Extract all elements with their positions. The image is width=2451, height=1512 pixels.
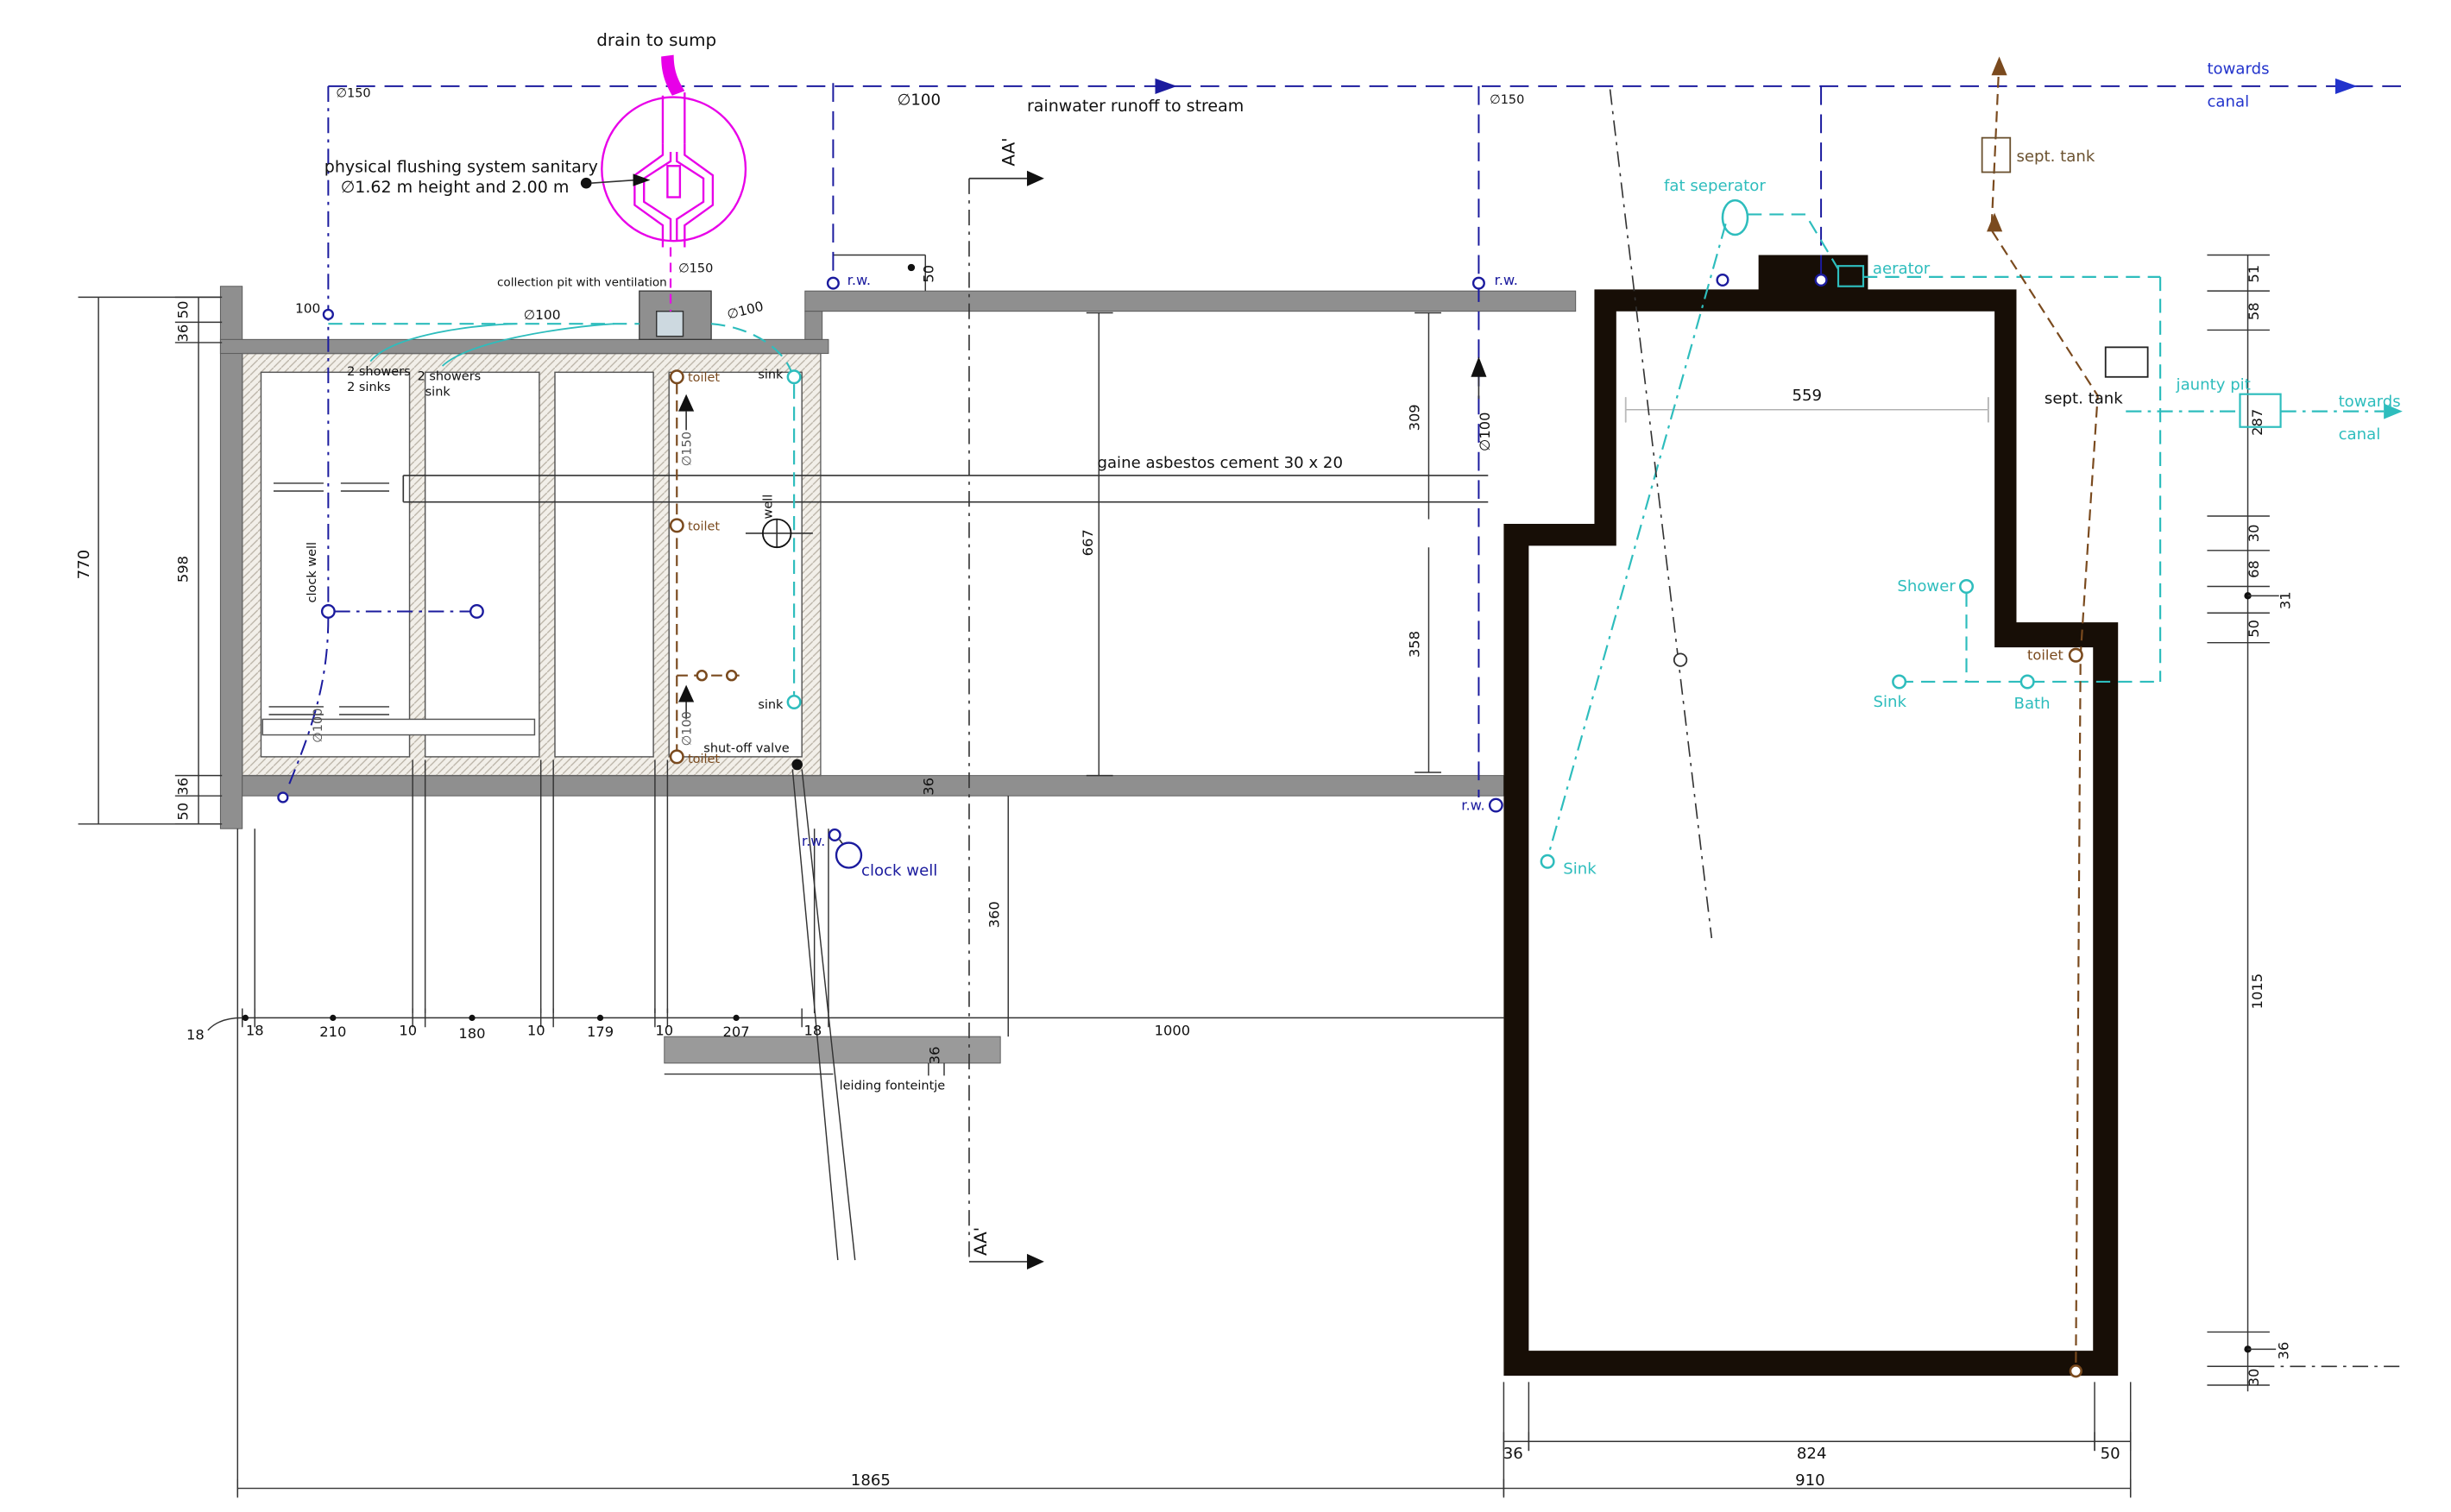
shower-node-icon — [1960, 580, 1972, 592]
flushing-note-line1: physical flushing system sanitary — [324, 158, 598, 177]
dim-559-label: 559 — [1792, 387, 1822, 405]
flushing-note-line2: ∅1.62 m height and 2.00 m — [341, 178, 570, 197]
dia100-riser-label: ∅100 — [681, 711, 695, 746]
sink-label: Sink — [1874, 693, 1907, 711]
section-arrow-bottom-icon — [1027, 1254, 1044, 1269]
toilet-node-icon — [671, 751, 683, 763]
pipe-node-icon — [1717, 274, 1729, 286]
dim-50-label: 50 — [920, 265, 936, 283]
dim-10-label: 10 — [655, 1022, 673, 1038]
sink-node-icon — [1893, 676, 1905, 688]
bath-node-icon — [2021, 676, 2033, 688]
sink-label: sink — [758, 698, 784, 712]
well-label: well — [762, 495, 776, 520]
dim-598-label: 598 — [174, 556, 191, 583]
toilet-label: toilet — [688, 520, 720, 533]
dim-1015-label: 1015 — [2249, 973, 2265, 1009]
pipe-node-icon — [1816, 274, 1827, 286]
room-2 — [425, 372, 539, 757]
toilet-label: toilet — [688, 371, 720, 385]
pipe-node-icon — [697, 671, 707, 680]
rw-node-icon — [829, 829, 841, 841]
dia100-exit-label: ∅100 — [312, 709, 325, 743]
sept-tank-icon — [2106, 347, 2148, 376]
dia100-down-label: ∅100 — [1477, 413, 1493, 451]
dim-36-label: 36 — [174, 778, 191, 796]
dim-210-label: 210 — [319, 1024, 346, 1040]
dim-910-label: 910 — [1795, 1471, 1825, 1490]
rw-label: r.w. — [847, 272, 871, 288]
shut-off-valve-icon — [791, 759, 803, 771]
jaunty-pit-label: jaunty pit — [2176, 375, 2251, 394]
sept-tank-label: sept. tank — [2045, 390, 2123, 408]
dim-360-label: 360 — [986, 901, 1002, 928]
rw-out-label: r.w. — [1461, 797, 1484, 813]
dim-36-label: 36 — [2276, 1342, 2292, 1360]
dim-30-label: 30 — [2246, 1369, 2262, 1387]
drain-pipe-icon — [661, 55, 684, 96]
clock-well-node-icon — [322, 605, 334, 617]
clock-well-room-label: clock well — [306, 542, 319, 603]
dim-31-label: 31 — [2277, 591, 2293, 609]
flow-up-arrow-icon — [1987, 213, 2002, 232]
clock-well-label: clock well — [861, 862, 937, 880]
toilet-node-icon — [671, 371, 683, 383]
flushing-system — [581, 55, 746, 312]
towards-label: towards — [2339, 393, 2401, 411]
pipe-node-icon — [727, 671, 736, 680]
room2-label1: 2 showers — [418, 369, 482, 383]
toilet-node-icon — [671, 520, 683, 532]
toilet-node-icon — [2070, 649, 2082, 661]
rw-clockwell-label: r.w. — [802, 833, 825, 849]
sept-tank-label: sept. tank — [2016, 148, 2095, 166]
pipe-node-icon — [278, 793, 287, 803]
fat-seperator-icon — [1723, 200, 1748, 235]
room-1 — [261, 372, 409, 757]
canal-label: canal — [2339, 425, 2381, 444]
bath-label: Bath — [2014, 695, 2051, 713]
dia100-label: ∅100 — [524, 307, 561, 323]
towards-label: towards — [2207, 60, 2269, 78]
room2-label2: sink — [425, 386, 451, 400]
dim-50-label: 50 — [174, 803, 191, 821]
sink-node-icon — [788, 371, 800, 383]
gaine-label: gaine asbestos cement 30 x 20 — [1097, 454, 1343, 472]
flushing-circle-icon — [602, 98, 746, 242]
dim-18-label: 18 — [186, 1027, 205, 1043]
dim-358-label: 358 — [1407, 631, 1423, 658]
room1-label1: 2 showers — [347, 365, 411, 379]
towards-canal-arrow-icon — [2335, 79, 2357, 94]
rw-node-icon — [1490, 799, 1502, 811]
clock-well-icon — [836, 843, 861, 868]
rw-label: r.w. — [1495, 272, 1518, 288]
toilet-label: toilet — [2027, 647, 2064, 664]
dia100-label: ∅100 — [898, 91, 941, 110]
dia100-label: ∅100 — [726, 299, 766, 323]
floor-plan-page: drain to sump physical flushing system s… — [0, 0, 2451, 1512]
fat-seperator-label: fat seperator — [1664, 177, 1766, 195]
dim-36-label: 36 — [174, 324, 191, 343]
pipe-node-icon — [1674, 653, 1686, 665]
canal-label: canal — [2207, 92, 2249, 110]
rainwater-label: rainwater runoff to stream — [1027, 97, 1244, 116]
dim-1865-label: 1865 — [851, 1471, 891, 1490]
dim-1000-label: 1000 — [1155, 1022, 1190, 1038]
dim-309-label: 309 — [1407, 404, 1423, 431]
dim-36-bar-label: 36 — [927, 1046, 943, 1064]
pipe-node-icon — [324, 310, 333, 319]
dim-68-label: 68 — [2246, 560, 2262, 578]
shower-label: Shower — [1897, 577, 1956, 595]
dim-50-label: 50 — [174, 301, 191, 319]
collection-pit-opening — [657, 312, 684, 337]
section-label-bottom: AA' — [971, 1227, 991, 1256]
dim-207-label: 207 — [723, 1024, 750, 1040]
dim-824-label: 824 — [1797, 1445, 1827, 1463]
right-building-walls — [1503, 255, 2118, 1377]
drain-to-sump-label: drain to sump — [596, 30, 716, 50]
collection-pit-label: collection pit with ventilation — [497, 276, 667, 290]
leiding-label: leiding fonteintje — [840, 1080, 946, 1093]
dim-287-label: 287 — [2249, 409, 2265, 436]
section-line-aa — [969, 171, 1044, 1269]
sink-node-icon — [788, 696, 800, 708]
flow-up-arrow-icon — [1992, 56, 2007, 75]
dim-30-label: 30 — [2246, 525, 2262, 543]
flow-arrow-icon — [1155, 79, 1176, 94]
sink-label: sink — [758, 369, 784, 382]
section-label-top: AA' — [999, 137, 1018, 166]
rw-node-icon — [1473, 278, 1484, 289]
flow-up-arrow-icon — [1471, 356, 1486, 377]
dia150-label: ∅150 — [678, 261, 713, 275]
dia150-riser-label: ∅150 — [681, 432, 695, 466]
sept-tank-icon — [1982, 138, 2011, 173]
dim-51-label: 51 — [2246, 265, 2262, 283]
dim-18-label: 18 — [246, 1022, 264, 1038]
aerator-label: aerator — [1873, 260, 1931, 278]
section-arrow-top-icon — [1027, 171, 1044, 186]
dim-36-wall-label: 36 — [920, 778, 936, 796]
room-3 — [555, 372, 653, 757]
dim-50-label: 50 — [2101, 1445, 2120, 1463]
dim-770-label: 770 — [75, 550, 93, 580]
shut-off-valve-label: shut-off valve — [703, 741, 789, 755]
dim-18-label: 18 — [803, 1022, 822, 1038]
dim-58-label: 58 — [2246, 302, 2262, 320]
dim-180-label: 180 — [458, 1025, 485, 1042]
dim-667-label: 667 — [1080, 529, 1096, 556]
room1-label2: 2 sinks — [347, 381, 390, 394]
sink-label: Sink — [1563, 860, 1597, 879]
dim-179-label: 179 — [587, 1024, 614, 1040]
dim-10-label: 10 — [399, 1022, 417, 1038]
floor-plan-drawing: drain to sump physical flushing system s… — [0, 0, 2451, 1512]
pipe-node-icon — [2070, 1365, 2082, 1377]
dia150-label: ∅150 — [336, 87, 370, 101]
clock-well-node-icon — [470, 605, 482, 617]
dim-100-label: 100 — [295, 301, 320, 317]
rw-node-icon — [828, 278, 839, 289]
dim-10-label: 10 — [527, 1022, 545, 1038]
dim-50-label: 50 — [2246, 620, 2262, 638]
dia150-label: ∅150 — [1490, 93, 1524, 107]
right-building — [1503, 255, 2118, 1377]
dim-36-label: 36 — [1503, 1445, 1523, 1463]
sink-node-icon — [1541, 855, 1553, 867]
